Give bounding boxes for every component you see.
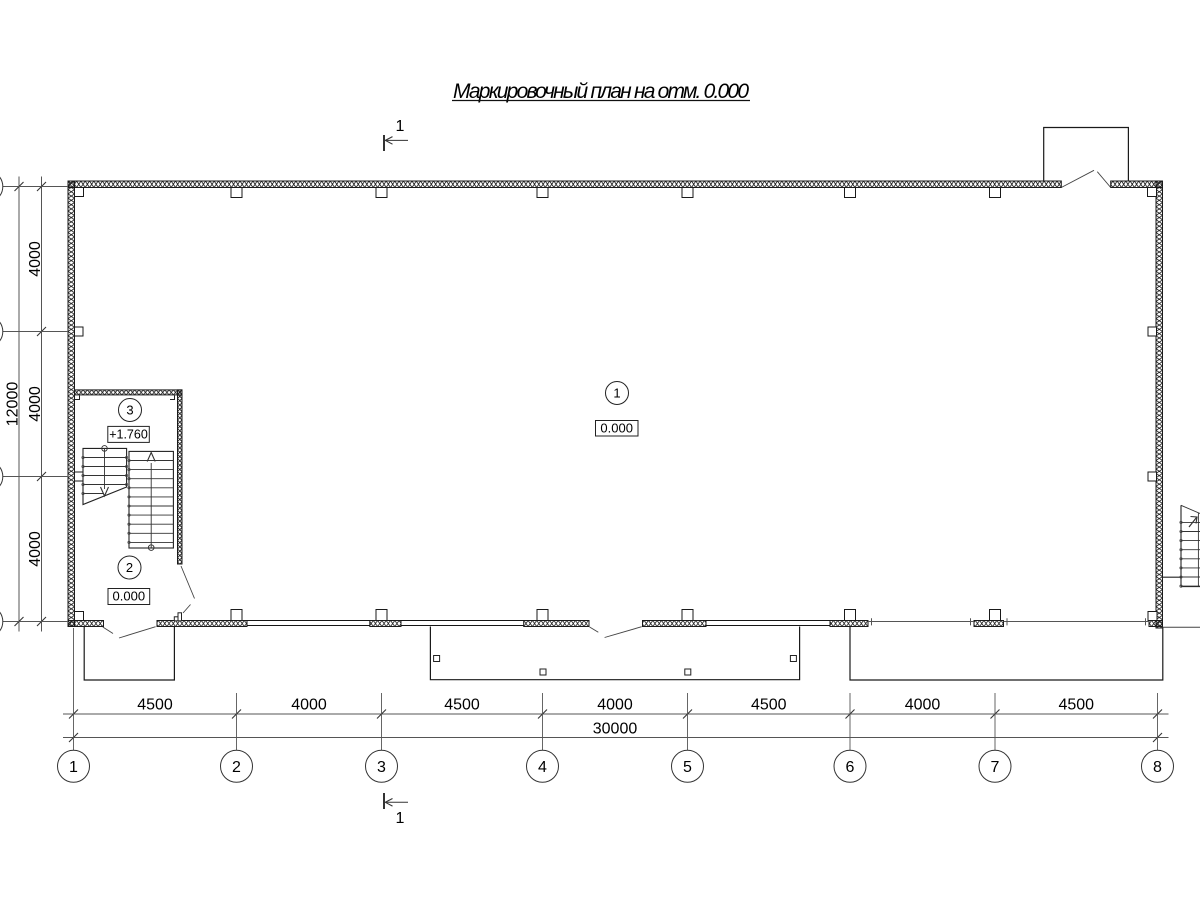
svg-text:4500: 4500: [1058, 697, 1094, 714]
svg-text:3: 3: [377, 759, 386, 776]
svg-text:4000: 4000: [27, 241, 44, 277]
svg-text:3: 3: [126, 403, 133, 418]
svg-text:0.000: 0.000: [600, 421, 633, 436]
svg-text:+1.760: +1.760: [109, 428, 148, 442]
svg-text:2: 2: [232, 759, 241, 776]
svg-text:7: 7: [991, 759, 1000, 776]
svg-text:2: 2: [126, 560, 133, 575]
svg-text:8: 8: [1153, 759, 1162, 776]
svg-text:1: 1: [69, 759, 78, 776]
svg-text:4000: 4000: [597, 697, 633, 714]
svg-text:1: 1: [613, 386, 620, 401]
svg-text:5: 5: [683, 759, 692, 776]
svg-text:30000: 30000: [593, 721, 638, 738]
svg-text:4000: 4000: [291, 697, 327, 714]
svg-text:4500: 4500: [137, 697, 173, 714]
svg-text:12000: 12000: [5, 382, 22, 427]
svg-text:Маркировочный план на отм. 0.0: Маркировочный план на отм. 0.000: [453, 80, 749, 103]
svg-text:6: 6: [846, 759, 855, 776]
svg-text:4000: 4000: [27, 531, 44, 567]
svg-text:1: 1: [396, 810, 405, 827]
svg-text:4000: 4000: [905, 697, 941, 714]
svg-text:0.000: 0.000: [113, 589, 146, 604]
svg-text:1: 1: [396, 118, 405, 135]
svg-text:4000: 4000: [27, 386, 44, 422]
svg-text:4: 4: [538, 759, 547, 776]
svg-text:4500: 4500: [751, 697, 787, 714]
svg-text:4500: 4500: [444, 697, 480, 714]
